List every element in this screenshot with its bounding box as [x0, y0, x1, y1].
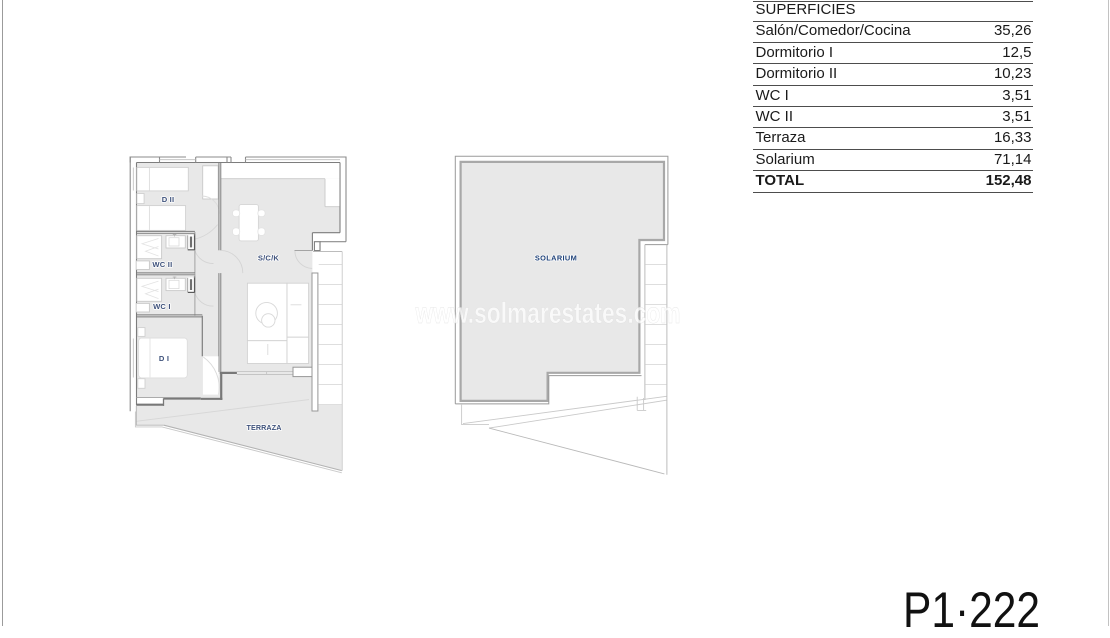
svg-text:S/C/K: S/C/K	[258, 253, 280, 262]
svg-text:TERRAZA: TERRAZA	[246, 423, 281, 432]
svg-text:www.solmarestates.com: www.solmarestates.com	[415, 297, 681, 330]
svg-text:WC II: WC II	[152, 260, 172, 269]
svg-text:D I: D I	[159, 354, 169, 363]
svg-text:WC I: WC I	[153, 302, 171, 311]
svg-text:D II: D II	[162, 195, 175, 204]
svg-text:SOLARIUM: SOLARIUM	[535, 253, 577, 262]
